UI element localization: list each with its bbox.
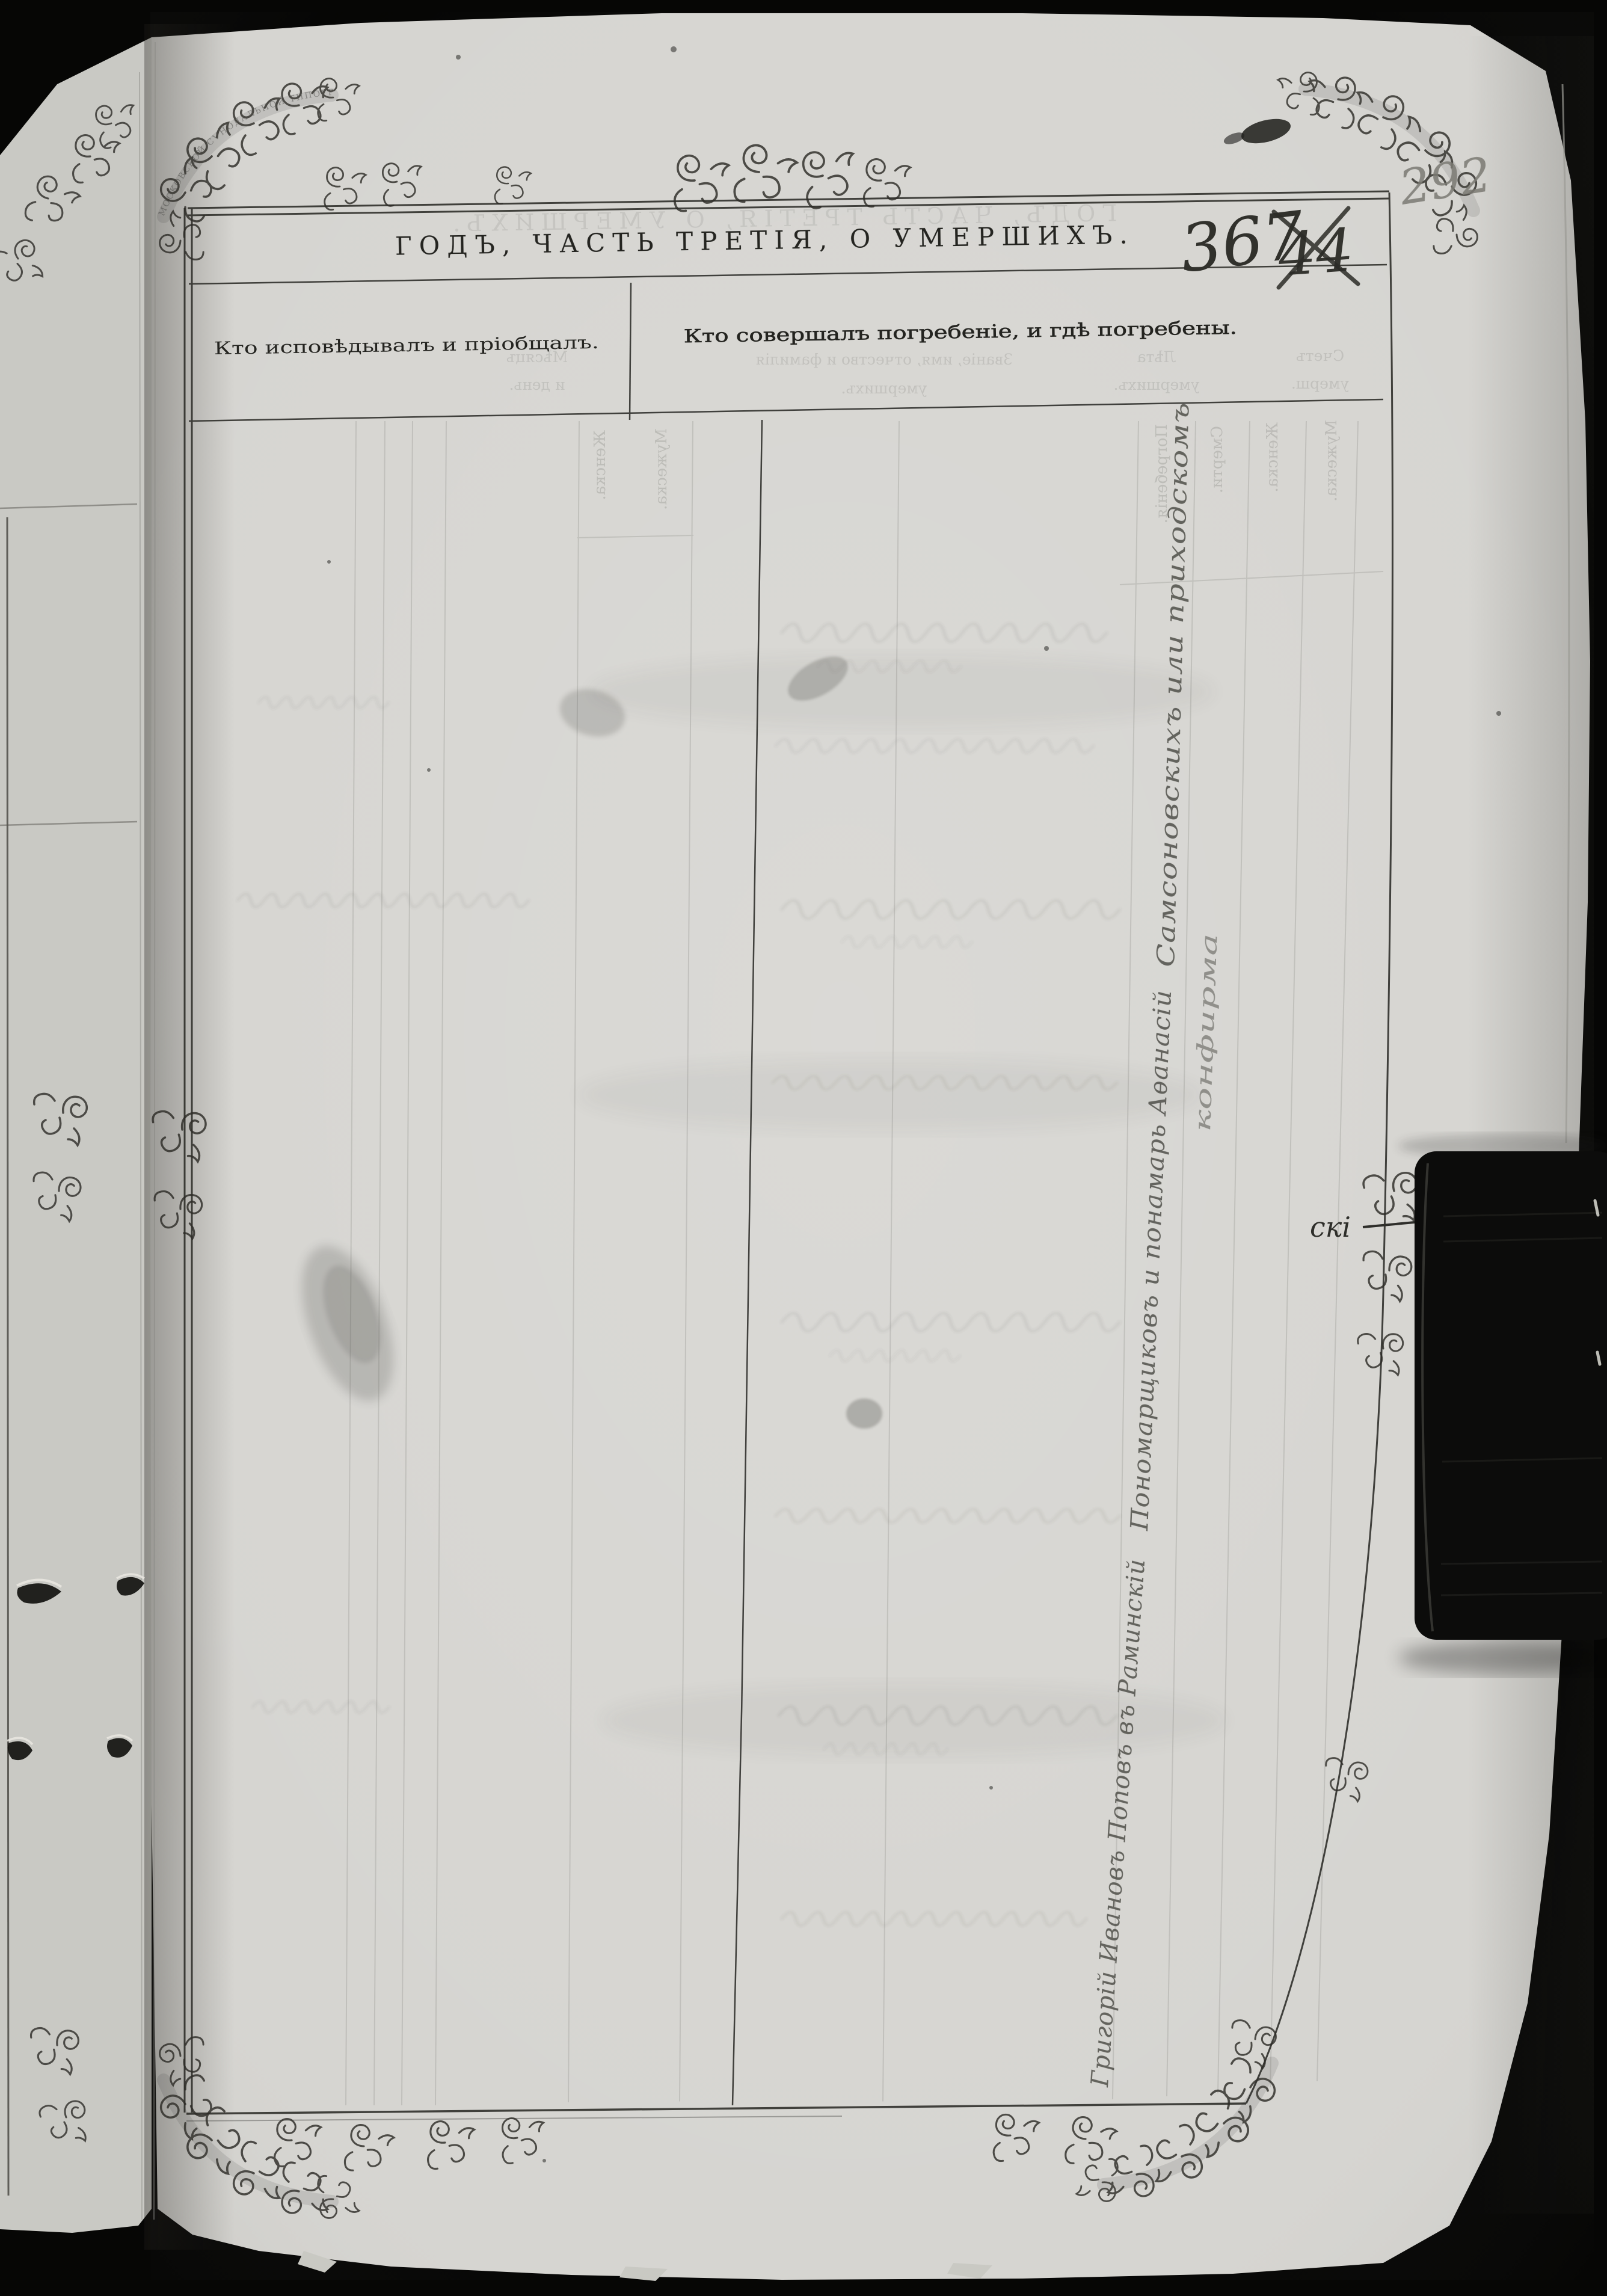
- ink-smudge-3: [846, 1399, 882, 1429]
- bleed-subcol-male: Мужеска.: [653, 428, 671, 510]
- bleed-header-month2: и день.: [509, 376, 565, 393]
- bleed-header-name2: умершихъ.: [841, 380, 927, 397]
- bleed-header-age2: умершихъ.: [1114, 376, 1200, 393]
- bleed-subcol-female2: Женска.: [1264, 422, 1282, 493]
- clamp-bottom-shadow: [1398, 1641, 1607, 1675]
- bleed-header-name: Званіе, имя, отчество и фамилія: [755, 351, 1013, 368]
- facing-page-border-line: [7, 517, 8, 2196]
- black-clamp: [1398, 1134, 1607, 1675]
- margin-continuation-text: скі: [1310, 1211, 1351, 1243]
- bleed-subcol-female: Женска.: [591, 430, 609, 500]
- scanned-document-page: ГОДЪ, ЧАСТЬ ТРЕТІЯ, О УМЕРШИХЪ. Мѣсяцъ и…: [0, 0, 1607, 2296]
- bleed-subcol-death: Смерти.: [1208, 426, 1226, 493]
- clamp-body: [1415, 1151, 1607, 1640]
- bleed-subcol-male2: Мужеска.: [1323, 420, 1341, 502]
- bleed-header-age: Лѣта: [1137, 348, 1176, 366]
- facing-page-edge: [0, 37, 152, 2233]
- document-scan: ГОДЪ, ЧАСТЬ ТРЕТІЯ, О УМЕРШИХЪ. Мѣсяцъ и…: [0, 0, 1607, 2296]
- bleed-header-count: Счетъ: [1296, 347, 1344, 365]
- crossed-out-number: 44: [1274, 208, 1358, 290]
- facing-page-paper: [0, 37, 152, 2233]
- bleed-header-count2: умерш.: [1291, 375, 1349, 392]
